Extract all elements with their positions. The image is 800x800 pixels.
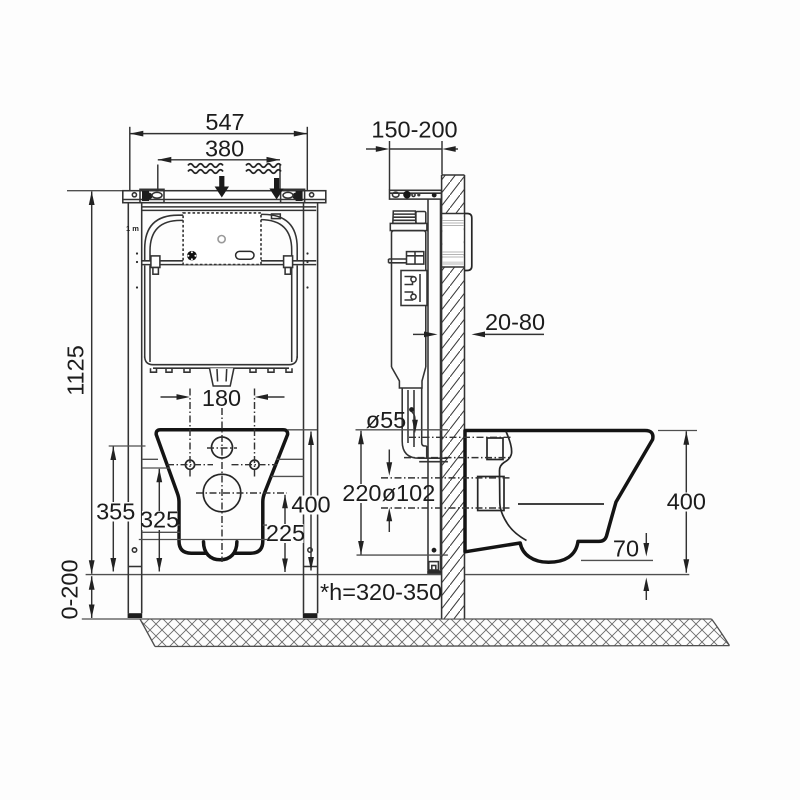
svg-text:1 m: 1 m	[126, 224, 139, 233]
svg-text:355: 355	[96, 499, 135, 525]
svg-text:ø55: ø55	[366, 407, 407, 433]
svg-text:225: 225	[266, 520, 305, 546]
svg-text:400: 400	[291, 491, 330, 517]
svg-text:*h=320-350: *h=320-350	[320, 579, 442, 605]
svg-text:20-80: 20-80	[485, 309, 545, 335]
svg-text:547: 547	[205, 109, 244, 135]
svg-text:70: 70	[613, 536, 639, 562]
svg-text:0-200: 0-200	[57, 559, 83, 619]
svg-text:380: 380	[205, 136, 244, 162]
svg-text:ø102: ø102	[382, 480, 436, 506]
svg-text:1125: 1125	[63, 345, 89, 396]
svg-text:180: 180	[202, 385, 241, 411]
svg-text:325: 325	[140, 507, 179, 533]
svg-text:220: 220	[342, 480, 381, 506]
svg-text:400: 400	[667, 488, 706, 514]
svg-text:150-200: 150-200	[371, 116, 457, 142]
